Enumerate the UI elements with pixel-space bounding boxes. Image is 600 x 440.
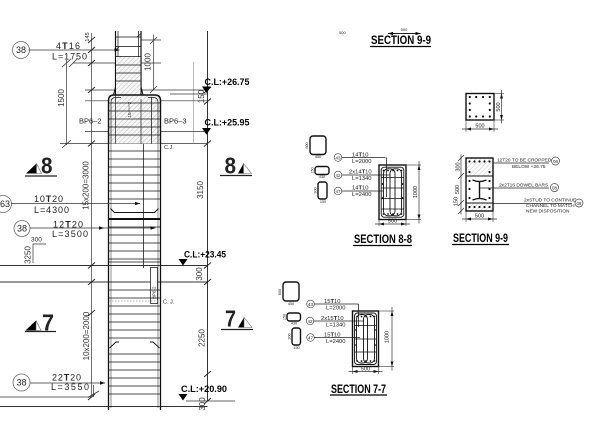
svg-text:C.L:+25.95: C.L:+25.95 [205, 118, 250, 128]
svg-text:2xSTUD TO CONTINUE: 2xSTUD TO CONTINUE [524, 198, 576, 204]
svg-text:600: 600 [278, 289, 282, 295]
svg-text:CHANNEL TO MATCH: CHANNEL TO MATCH [526, 203, 575, 209]
svg-text:2x14T10: 2x14T10 [349, 170, 372, 176]
svg-text:L=3550: L=3550 [51, 382, 89, 392]
svg-text:L=1340: L=1340 [326, 323, 346, 329]
svg-text:L=2000: L=2000 [326, 306, 346, 312]
svg-text:38: 38 [16, 45, 26, 55]
svg-text:10T20: 10T20 [34, 194, 63, 204]
svg-text:150: 150 [197, 89, 206, 103]
svg-text:1000: 1000 [144, 53, 153, 71]
svg-text:38: 38 [17, 224, 27, 234]
svg-text:500: 500 [388, 219, 397, 225]
svg-text:43: 43 [308, 302, 314, 307]
svg-text:C. J.: C. J. [163, 300, 175, 306]
svg-text:500: 500 [401, 27, 408, 32]
svg-text:300: 300 [195, 267, 204, 281]
svg-text:15x200=3000: 15x200=3000 [82, 161, 91, 210]
svg-text:1000: 1000 [413, 186, 419, 198]
svg-text:2x15T10: 2x15T10 [321, 316, 344, 322]
svg-text:BP6–2: BP6–2 [79, 117, 102, 126]
svg-text:L=2400: L=2400 [326, 339, 346, 345]
svg-text:300: 300 [288, 333, 292, 339]
svg-text:43: 43 [335, 156, 341, 161]
svg-text:12T20 TO BE CROPPED: 12T20 TO BE CROPPED [497, 158, 552, 164]
svg-text:L=2000: L=2000 [352, 159, 372, 165]
svg-text:L=1340: L=1340 [352, 176, 372, 182]
svg-text:500: 500 [496, 102, 502, 111]
svg-text:08: 08 [552, 186, 558, 191]
svg-text:15T10: 15T10 [324, 299, 340, 305]
svg-text:SECTION 7-7: SECTION 7-7 [331, 382, 386, 396]
svg-text:NEW DISPOSITION: NEW DISPOSITION [526, 209, 570, 215]
svg-text:8: 8 [225, 153, 237, 179]
svg-text:8: 8 [41, 153, 53, 179]
svg-text:450: 450 [288, 302, 294, 306]
svg-text:4T16: 4T16 [56, 41, 80, 51]
svg-text:08: 08 [576, 201, 582, 206]
svg-text:430: 430 [291, 322, 297, 326]
svg-text:12T20: 12T20 [53, 220, 83, 230]
svg-text:7: 7 [225, 306, 236, 332]
svg-text:150: 150 [311, 167, 315, 173]
svg-text:BP6–3: BP6–3 [164, 117, 187, 126]
svg-text:500: 500 [339, 30, 346, 35]
svg-text:14T10: 14T10 [352, 153, 368, 159]
svg-text:300: 300 [314, 187, 318, 193]
svg-text:63: 63 [0, 199, 10, 209]
svg-text:SECTION 9-9: SECTION 9-9 [371, 33, 431, 47]
svg-text:SECTION 8-8: SECTION 8-8 [354, 232, 412, 246]
svg-text:C.J.: C.J. [164, 145, 174, 151]
svg-text:500: 500 [475, 124, 484, 130]
svg-text:500: 500 [455, 185, 461, 194]
svg-text:3150: 3150 [196, 181, 205, 199]
svg-text:BELOW +26.75: BELOW +26.75 [512, 164, 546, 170]
svg-text:150: 150 [454, 197, 460, 206]
svg-text:C.L:+26.75: C.L:+26.75 [205, 77, 250, 87]
svg-text:300: 300 [198, 397, 207, 411]
svg-text:14T10: 14T10 [352, 186, 368, 192]
svg-text:150: 150 [293, 346, 299, 350]
svg-text:BP6-2: BP6-2 [152, 286, 157, 299]
svg-text:430: 430 [319, 175, 325, 179]
svg-text:2x2T16 DOWEL BARS: 2x2T16 DOWEL BARS [499, 183, 548, 189]
svg-text:10: 10 [127, 112, 132, 118]
svg-text:150: 150 [283, 314, 287, 320]
svg-text:500: 500 [475, 214, 484, 220]
svg-text:500: 500 [361, 367, 370, 373]
svg-text:L=4300: L=4300 [34, 205, 69, 215]
svg-text:450: 450 [315, 155, 321, 159]
svg-text:SECTION 9-9: SECTION 9-9 [453, 231, 508, 245]
svg-text:L=3500: L=3500 [52, 229, 88, 239]
svg-text:600: 600 [305, 142, 309, 148]
svg-text:1500: 1500 [57, 89, 66, 107]
svg-text:300: 300 [31, 237, 42, 244]
svg-text:47: 47 [335, 189, 341, 194]
svg-text:10x200=2000: 10x200=2000 [82, 311, 91, 360]
svg-text:2250: 2250 [198, 329, 207, 347]
svg-text:C.L:+20.90: C.L:+20.90 [181, 384, 227, 394]
svg-text:42: 42 [307, 319, 313, 324]
svg-text:C.L:+23.45: C.L:+23.45 [184, 250, 226, 260]
svg-text:145: 145 [85, 32, 91, 41]
svg-text:1000: 1000 [385, 331, 391, 343]
svg-text:42: 42 [335, 173, 341, 178]
svg-text:15T10: 15T10 [324, 333, 340, 339]
svg-text:47: 47 [308, 336, 314, 341]
svg-text:38: 38 [16, 378, 26, 388]
svg-text:150: 150 [320, 200, 326, 204]
svg-text:06: 06 [553, 159, 559, 164]
svg-text:3250: 3250 [24, 246, 33, 264]
svg-text:300: 300 [456, 162, 462, 171]
svg-text:L=1750: L=1750 [52, 52, 87, 62]
svg-text:22T20: 22T20 [52, 373, 81, 383]
svg-text:L=2400: L=2400 [352, 192, 372, 198]
